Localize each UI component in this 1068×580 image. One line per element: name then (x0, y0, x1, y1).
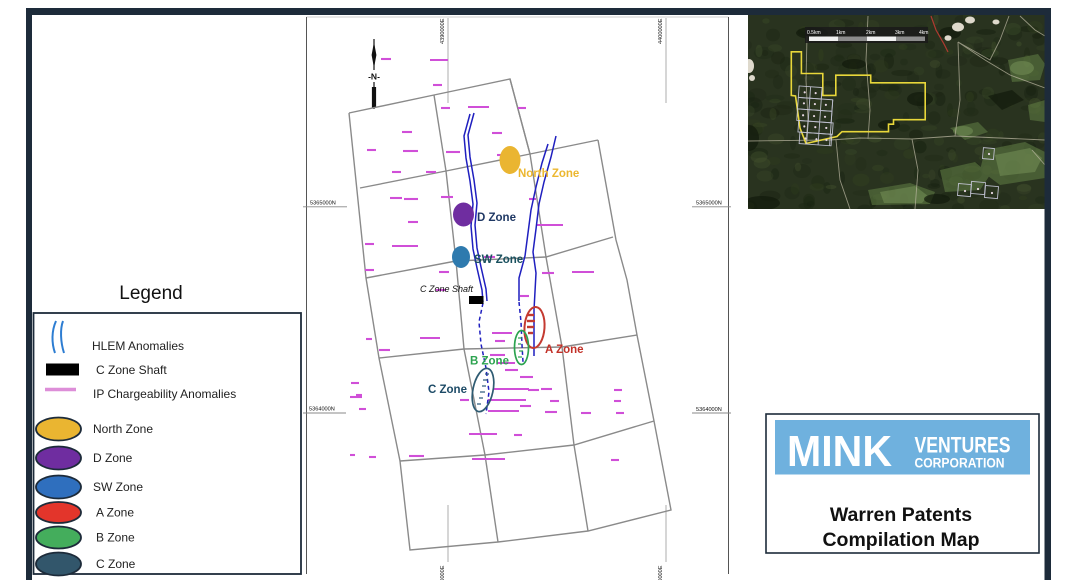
svg-text:5364000N: 5364000N (696, 407, 722, 413)
svg-text:IP Chargeability Anomalies: IP Chargeability Anomalies (93, 387, 236, 401)
svg-text:Warren Patents: Warren Patents (830, 504, 972, 526)
svg-text:A Zone: A Zone (545, 344, 584, 356)
svg-text:Compilation Map: Compilation Map (822, 529, 979, 551)
svg-text:4390000E: 4390000E (440, 18, 446, 44)
svg-text:5365000N: 5365000N (696, 201, 722, 207)
svg-text:D Zone: D Zone (93, 451, 133, 465)
svg-text:C Zone: C Zone (96, 557, 136, 571)
svg-text:0.5km: 0.5km (807, 30, 821, 36)
svg-text:C Zone Shaft: C Zone Shaft (420, 284, 474, 294)
svg-text:C Zone: C Zone (428, 384, 467, 396)
svg-text:3km: 3km (895, 30, 904, 36)
svg-text:Legend: Legend (119, 283, 182, 304)
svg-text:B Zone: B Zone (470, 356, 509, 368)
svg-text:CORPORATION: CORPORATION (915, 456, 1005, 471)
svg-text:HLEM Anomalies: HLEM Anomalies (92, 339, 184, 353)
svg-text:SW Zone: SW Zone (93, 480, 143, 494)
svg-text:5365000N: 5365000N (310, 201, 336, 207)
svg-text:North Zone: North Zone (518, 168, 579, 180)
svg-text:A Zone: A Zone (96, 506, 134, 520)
svg-text:4400000E: 4400000E (658, 18, 664, 44)
svg-text:1km: 1km (836, 30, 845, 36)
svg-text:D Zone: D Zone (477, 212, 516, 224)
svg-text:2km: 2km (866, 30, 875, 36)
svg-text:4390000E: 4390000E (440, 565, 446, 580)
svg-text:4400000E: 4400000E (658, 565, 664, 580)
svg-text:C Zone Shaft: C Zone Shaft (96, 363, 167, 377)
svg-text:B Zone: B Zone (96, 531, 135, 545)
svg-text:5364000N: 5364000N (309, 407, 335, 413)
svg-text:4km: 4km (919, 30, 928, 36)
svg-text:North Zone: North Zone (93, 422, 153, 436)
svg-text:VENTURES: VENTURES (915, 433, 1011, 458)
svg-text:SW Zone: SW Zone (474, 254, 523, 266)
svg-text:MINK: MINK (787, 427, 892, 476)
svg-text:-N-: -N- (368, 72, 380, 82)
